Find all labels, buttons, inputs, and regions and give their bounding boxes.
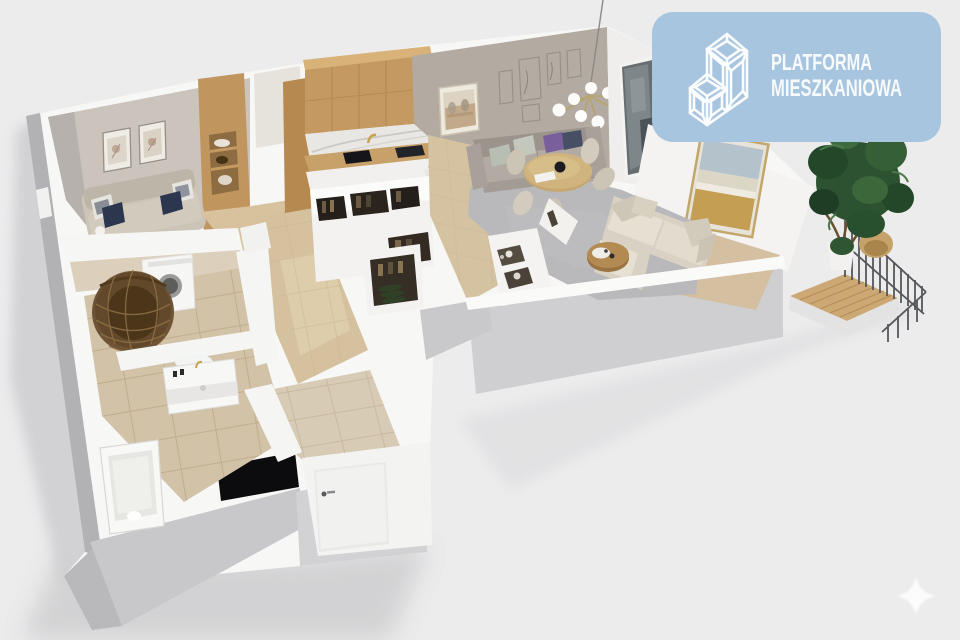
svg-text:MIESZKANIOWA: MIESZKANIOWA [771, 75, 902, 102]
svg-text:PLATFORMA: PLATFORMA [771, 49, 872, 75]
